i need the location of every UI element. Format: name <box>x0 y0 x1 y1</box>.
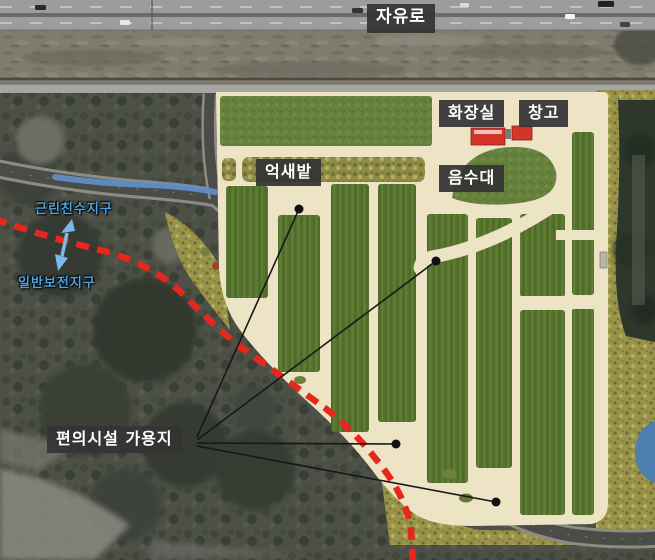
field-strip <box>572 308 594 515</box>
field-strip <box>572 132 594 295</box>
callout-dot <box>492 498 501 507</box>
field-strip <box>476 218 512 468</box>
facility-available-land-label: 편의시설 가용지 <box>47 426 182 453</box>
callout-dot <box>295 205 304 214</box>
site-plan-map: 자유로 화장실 창고 억새밭 음수대 근린친수지구 일반보전지구 편의시설 가용… <box>0 0 655 560</box>
highway-label: 자유로 <box>367 4 435 33</box>
restroom-roofline <box>474 130 502 134</box>
satellite-map-canvas <box>0 0 655 560</box>
field-strip <box>378 184 416 422</box>
field-strip <box>226 186 268 298</box>
field-strip <box>520 310 565 515</box>
storage-label: 창고 <box>519 100 568 127</box>
callout-dot <box>432 257 441 266</box>
field-strip <box>331 184 369 432</box>
frontage-road <box>0 84 655 93</box>
restroom-label: 화장실 <box>439 100 504 127</box>
zone-label-neighborhood-waterfront: 근린친수지구 <box>35 198 113 217</box>
callout-dot <box>392 440 401 449</box>
zone-label-general-preservation: 일반보전지구 <box>18 272 96 291</box>
field-strip <box>278 215 320 372</box>
callout-line <box>197 443 396 444</box>
hedge-strip-left <box>222 158 236 181</box>
bench-marker <box>600 252 607 268</box>
highway <box>0 0 655 30</box>
tree-area-track <box>632 155 645 305</box>
top-lawn <box>220 96 432 146</box>
silvergrass-field-label: 억새밭 <box>256 159 321 186</box>
drinking-fountain-label: 음수대 <box>439 165 504 192</box>
small-structure <box>505 129 511 139</box>
storage-building <box>512 126 532 140</box>
